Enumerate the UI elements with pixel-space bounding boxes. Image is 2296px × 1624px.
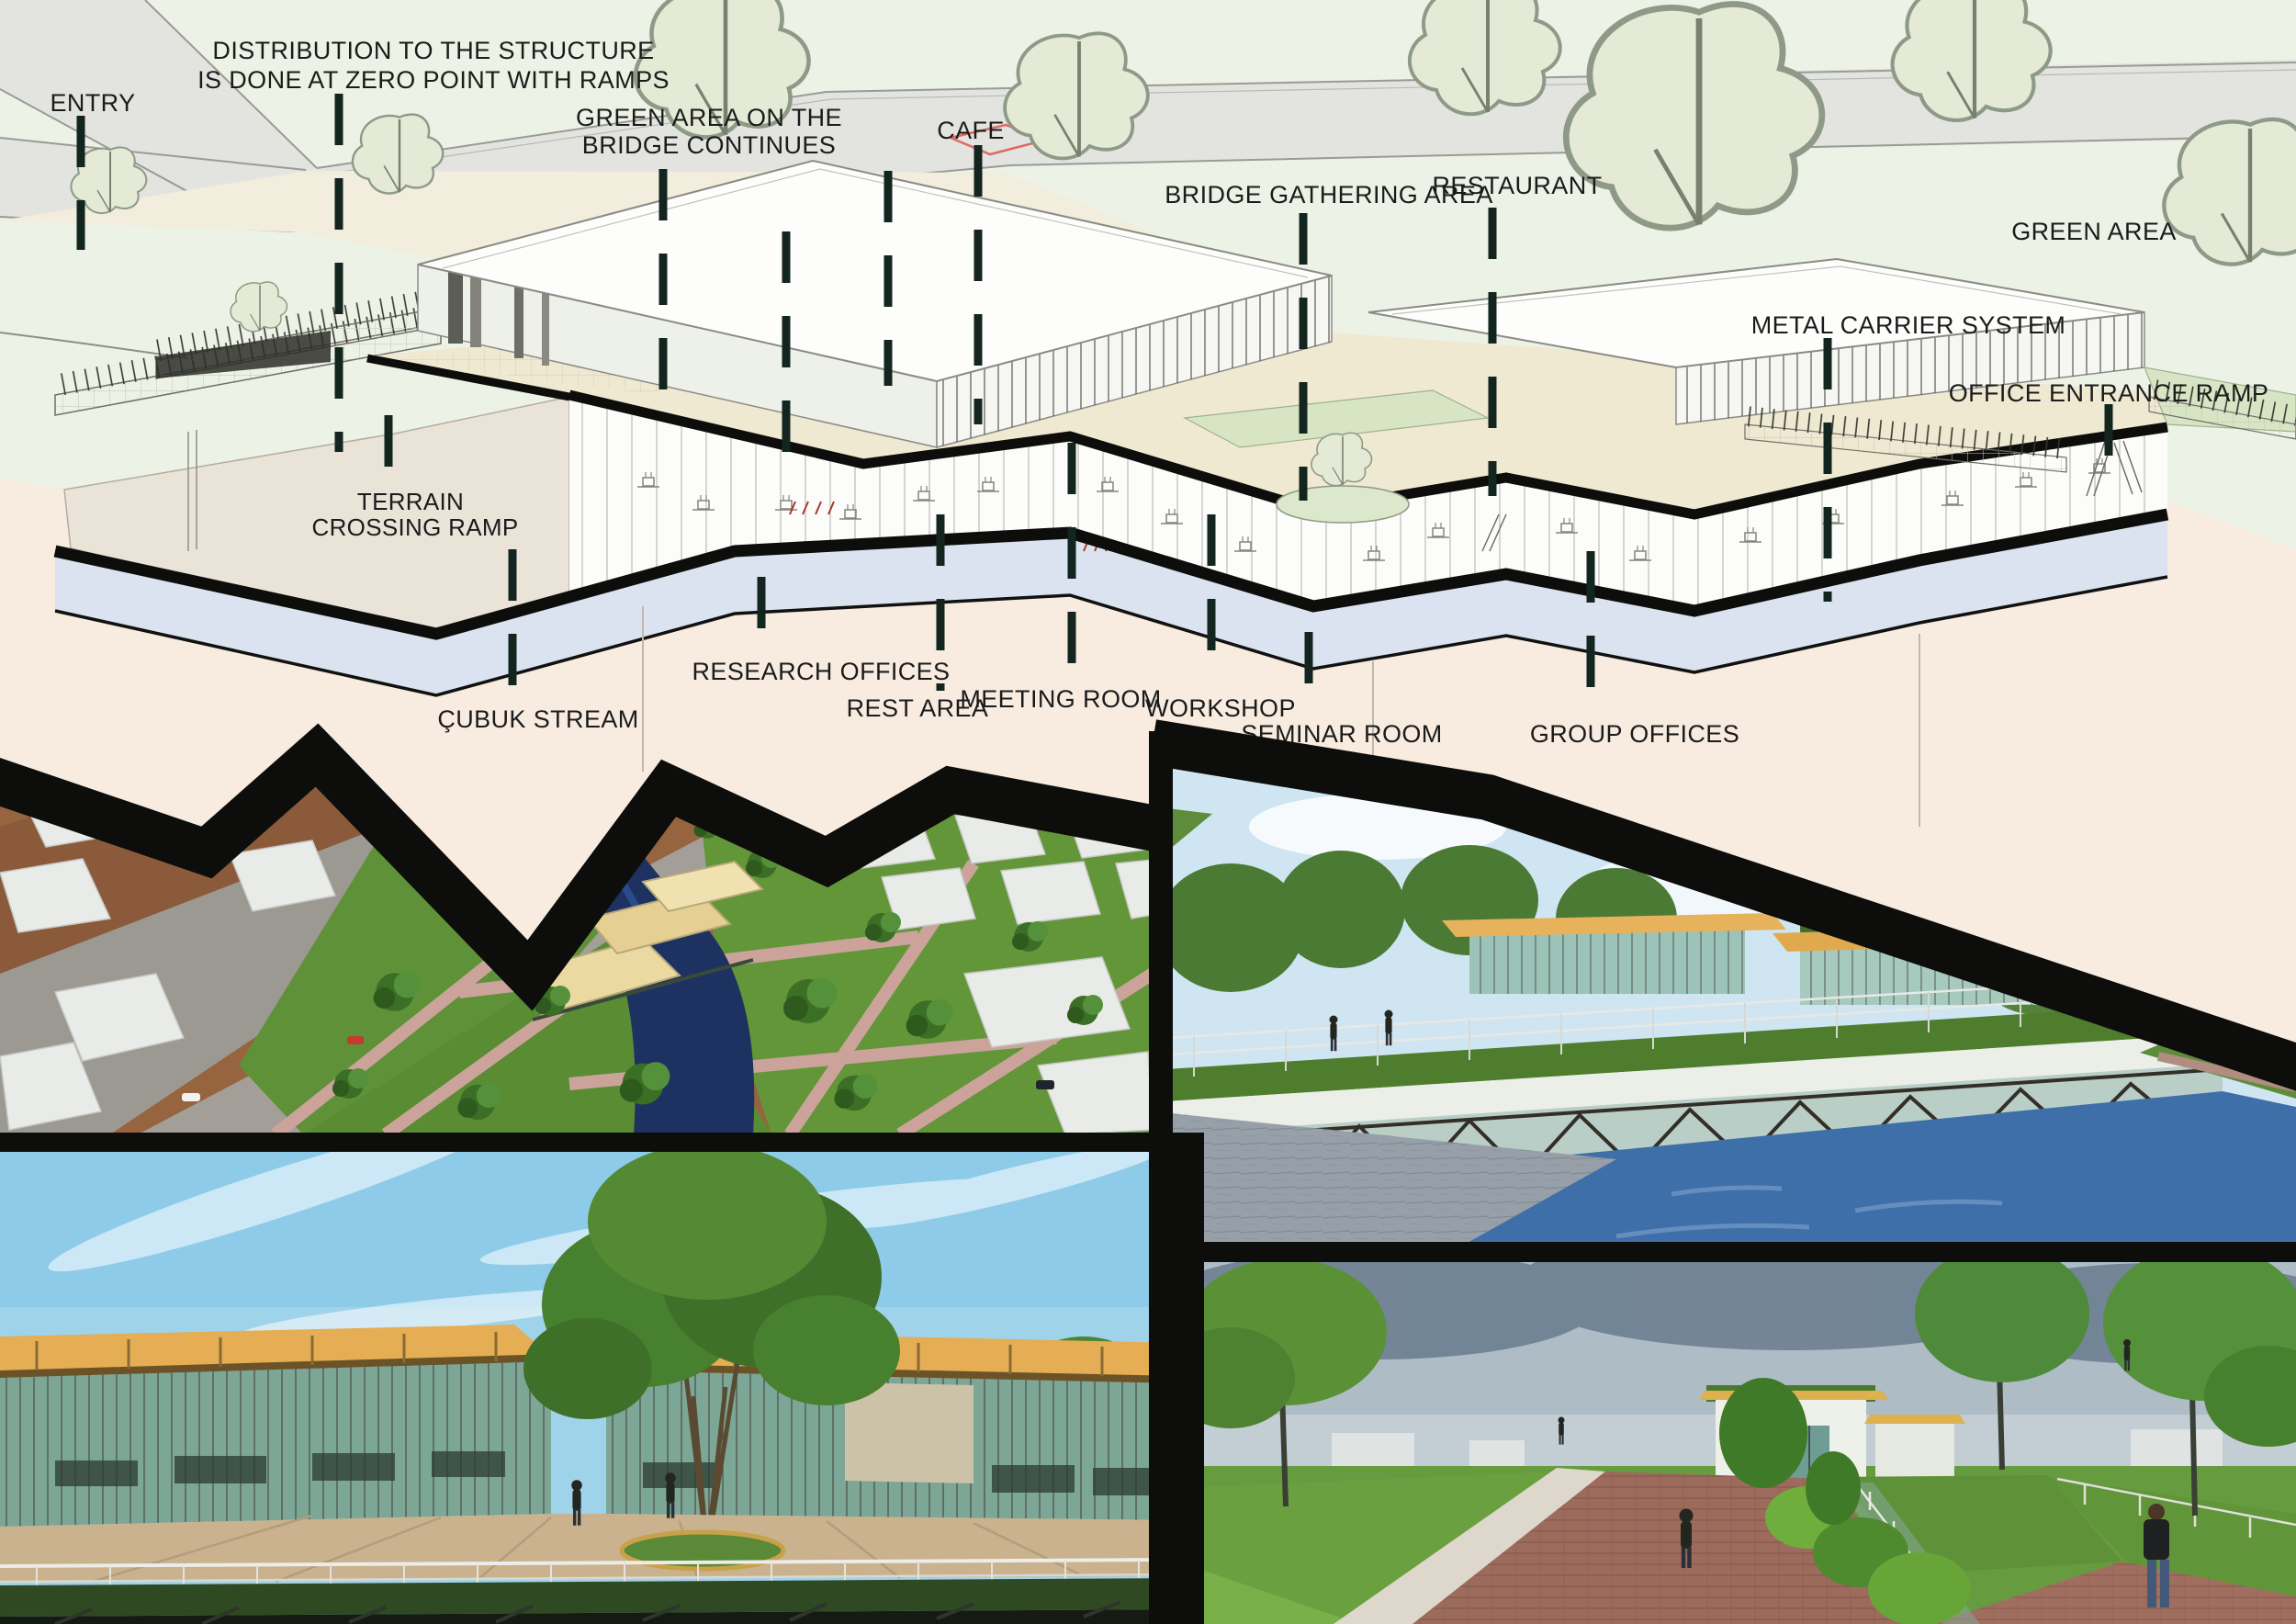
label-distribution-1: DISTRIBUTION TO THE STRUCTURE <box>212 37 654 64</box>
label-group-offices: GROUP OFFICES <box>1530 720 1739 748</box>
label-meeting-room: MEETING ROOM <box>960 685 1161 713</box>
render-entrance-ramps <box>1157 1222 2296 1624</box>
architecture-presentation-board: ENTRY DISTRIBUTION TO THE STRUCTURE IS D… <box>0 0 2296 1624</box>
label-entry: ENTRY <box>50 89 135 117</box>
label-distribution-2: IS DONE AT ZERO POINT WITH RAMPS <box>197 66 670 94</box>
left-canopy <box>0 1325 555 1527</box>
plaza-floor <box>0 1514 1177 1582</box>
label-metal-carrier: METAL CARRIER SYSTEM <box>1751 311 2066 339</box>
separator-horizontal-right <box>1185 1242 2296 1262</box>
label-restaurant: RESTAURANT <box>1432 172 1602 199</box>
separator-horizontal-left <box>0 1133 1154 1152</box>
board-canvas: ENTRY DISTRIBUTION TO THE STRUCTURE IS D… <box>0 0 2296 1624</box>
label-green-area: GREEN AREA <box>2011 218 2177 245</box>
label-green-bridge-1: GREEN AREA ON THE <box>576 104 842 131</box>
label-office-ramp: OFFICE ENTRANCE RAMP <box>1949 379 2269 407</box>
render-canopy-plaza <box>0 1098 1177 1624</box>
label-cubuk-stream: ÇUBUK STREAM <box>437 705 638 733</box>
label-cafe: CAFE <box>937 117 1005 144</box>
separator-vertical-bottom <box>1149 1133 1204 1624</box>
label-terrain-1: TERRAIN <box>357 488 464 515</box>
label-research-offices: RESEARCH OFFICES <box>692 658 951 685</box>
label-terrain-2: CROSSING RAMP <box>312 513 519 541</box>
label-green-bridge-2: BRIDGE CONTINUES <box>582 131 836 159</box>
label-workshop: WORKSHOP <box>1145 694 1296 722</box>
